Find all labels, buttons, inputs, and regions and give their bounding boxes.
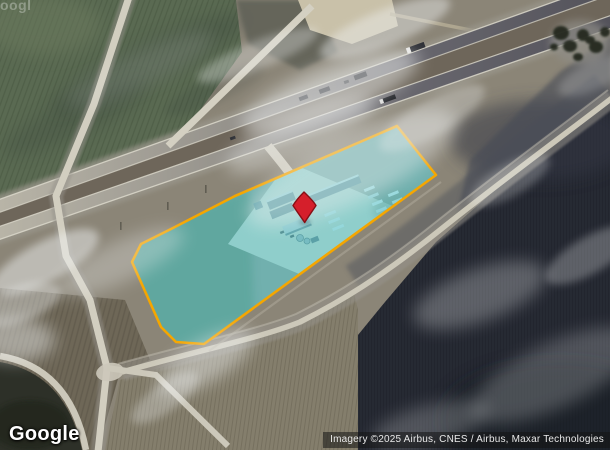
- satellite-imagery: [0, 0, 610, 450]
- imagery-attribution: Imagery ©2025 Airbus, CNES / Airbus, Max…: [323, 432, 610, 448]
- watermark-text: oogl: [0, 0, 32, 13]
- map-canvas[interactable]: oogl Google Imagery ©2025 Airbus, CNES /…: [0, 0, 610, 450]
- tree-cluster: [550, 20, 610, 64]
- google-logo[interactable]: Google: [9, 423, 80, 446]
